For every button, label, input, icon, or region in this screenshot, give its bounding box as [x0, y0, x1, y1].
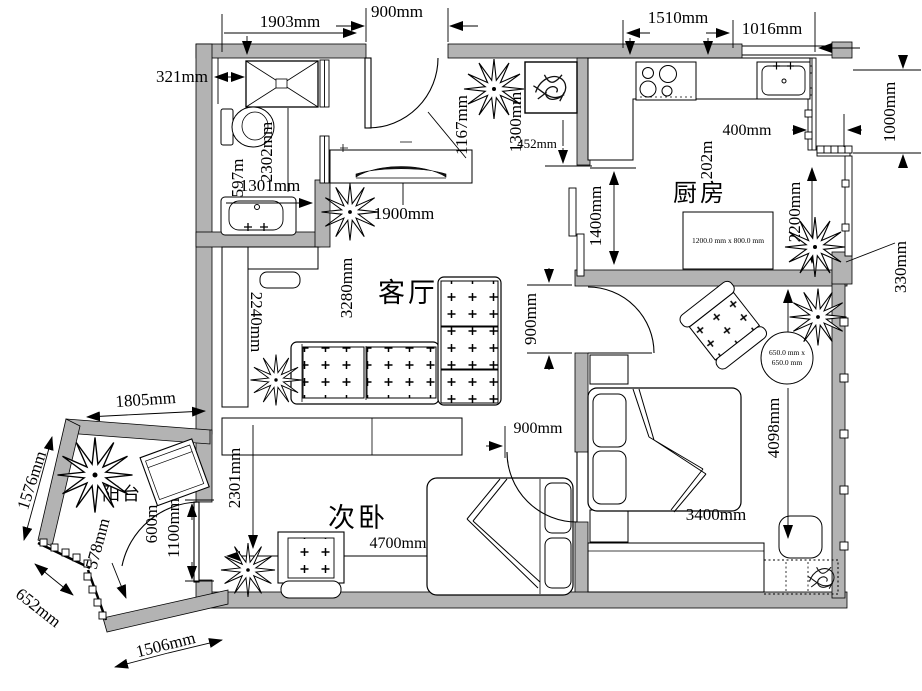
stove-burner — [643, 68, 654, 79]
dim-label-1903: 1903mm — [260, 12, 320, 31]
window-stud — [840, 486, 848, 494]
window-stud — [842, 180, 849, 187]
living-cabinet-tall — [222, 247, 248, 407]
wall-top-right-corner — [832, 42, 852, 58]
dim-label-1016: 1016mm — [742, 19, 802, 38]
window-stud — [62, 549, 69, 556]
round-table-label-2: 650.0 mm — [772, 358, 803, 367]
master-pillow — [593, 394, 626, 447]
window-stud — [840, 374, 848, 382]
window-stud — [51, 544, 58, 551]
sofa-cushion — [367, 347, 436, 398]
stool — [779, 516, 822, 558]
dim-label-1000: 1000mm — [880, 82, 899, 142]
dim-label-321: 321mm — [156, 67, 208, 86]
round-table-label-1: 650.0 mm x — [769, 348, 805, 357]
vanity-drain — [255, 205, 260, 210]
window-stud — [840, 430, 848, 438]
window-stud — [824, 146, 831, 153]
dim-label-1301: 1301mm — [240, 176, 300, 195]
dim-label-330: 330mm — [891, 241, 910, 293]
dim-label-entry-900: 900mm — [371, 2, 423, 21]
nightstand-bottom — [590, 510, 628, 542]
dim-label-4098: 4098mm — [764, 398, 783, 458]
kitchen-table-label: 1200.0 mm x 800.0 mm — [692, 236, 764, 245]
master-wardrobe — [588, 543, 764, 592]
wall-living-master — [575, 353, 588, 452]
dim-label-202: 202m — [697, 141, 716, 180]
kitchen-slider-2 — [577, 234, 584, 276]
wall-kitchen-bottom — [575, 270, 847, 286]
window-stud — [805, 132, 812, 139]
entry-door-leaf — [365, 58, 371, 128]
kitchen-sink-drain — [782, 79, 786, 83]
dim-label-2301: 2301mm — [225, 448, 244, 508]
sofa-cushion — [441, 327, 498, 369]
floor-plan-canvas: 1903mm 900mm 1510mm 1016mm 321mm 597m 23… — [0, 0, 922, 691]
window-stud — [840, 542, 848, 550]
wall-top-mid — [448, 44, 742, 58]
window-stud — [99, 612, 106, 619]
wall-right-step — [832, 252, 852, 284]
dim-label-1510: 1510mm — [648, 8, 708, 27]
living-cabinet-drawer — [260, 272, 300, 288]
dim-label-4700: 4700mm — [370, 535, 427, 552]
dim-label-600: 600m — [142, 505, 161, 544]
window-stud — [805, 110, 812, 117]
sofa-cushion — [441, 370, 498, 403]
dim-label-1900: 1900mm — [374, 204, 434, 223]
armchair-bed2-cushion — [288, 538, 334, 578]
room-label-second-bedroom: 次卧 — [328, 503, 388, 533]
toilet-tank — [221, 109, 233, 145]
dim-label-1400: 1400mm — [586, 186, 605, 246]
dim-label-2200: 2200mm — [785, 182, 804, 242]
wall-top-left — [196, 44, 366, 58]
window-stud — [94, 599, 101, 606]
nightstand-top — [590, 355, 628, 384]
room-label-living: 客厅 — [378, 278, 438, 308]
dim-label-bed2-900: 900mm — [514, 420, 563, 437]
window-stud — [842, 224, 849, 231]
floor-plan-svg: 1903mm 900mm 1510mm 1016mm 321mm 597m 23… — [0, 0, 922, 691]
dim-label-2302: 2302mm — [257, 122, 276, 182]
window-stud — [89, 586, 96, 593]
bed2-pillow — [545, 483, 571, 533]
stove-burner — [662, 86, 672, 96]
wall-bed2-master — [575, 522, 588, 594]
bed2-pillow — [545, 538, 571, 588]
living-cabinet-top — [248, 247, 318, 269]
window-bay-right — [845, 156, 852, 256]
kitchen-slider-1 — [569, 188, 576, 236]
armchair-bed2-seat — [281, 581, 341, 598]
master-pillow — [593, 451, 626, 504]
window-stud — [845, 146, 852, 153]
window-stud — [73, 554, 80, 561]
dim-label-452: 452mm — [517, 136, 557, 151]
dim-label-400: 400mm — [723, 122, 772, 139]
stove-burner — [640, 81, 656, 97]
window-stud — [831, 146, 838, 153]
dim-label-3280: 3280mm — [337, 258, 356, 318]
window-stud — [838, 146, 845, 153]
window-stud — [84, 573, 91, 580]
sofa-cushion — [303, 347, 364, 398]
dim-label-3400: 3400mm — [686, 505, 746, 524]
dim-label-1100: 1100mm — [164, 498, 183, 558]
desk — [222, 418, 462, 455]
window-stud — [817, 146, 824, 153]
shower-drain — [276, 79, 287, 88]
stove-burner — [660, 66, 677, 83]
sofa-cushion — [441, 281, 498, 326]
wall-bath-right — [315, 180, 330, 247]
dim-label-master-900: 900mm — [521, 293, 540, 345]
window-stud — [40, 539, 47, 546]
window-stud — [840, 318, 848, 326]
room-label-kitchen: 厨房 — [673, 180, 727, 207]
dim-label-2240: 2240mm — [247, 292, 266, 352]
balcony-door-leaf — [194, 502, 199, 582]
